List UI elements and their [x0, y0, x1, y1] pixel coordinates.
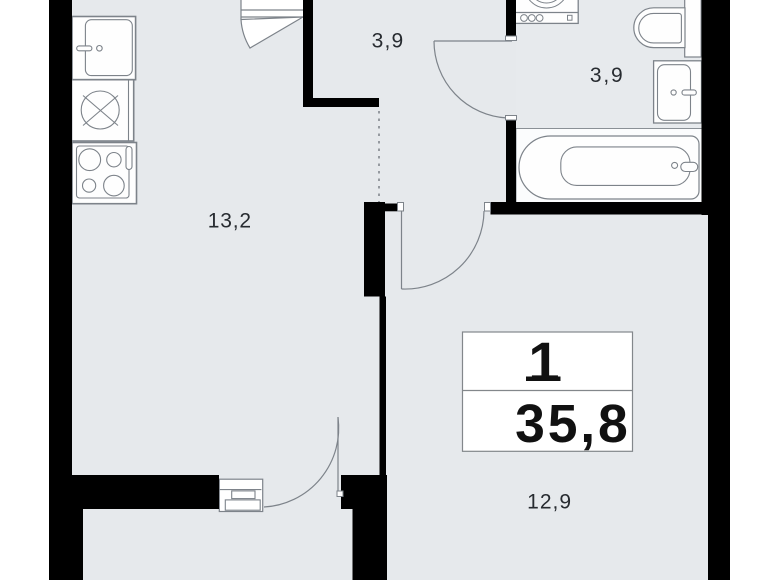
svg-text:1: 1 — [528, 330, 559, 393]
svg-text:35,8: 35,8 — [515, 395, 630, 454]
svg-text:3,9: 3,9 — [372, 29, 405, 52]
svg-text:3,9: 3,9 — [590, 64, 625, 87]
svg-text:13,2: 13,2 — [208, 210, 252, 233]
svg-text:12,9: 12,9 — [527, 491, 572, 514]
